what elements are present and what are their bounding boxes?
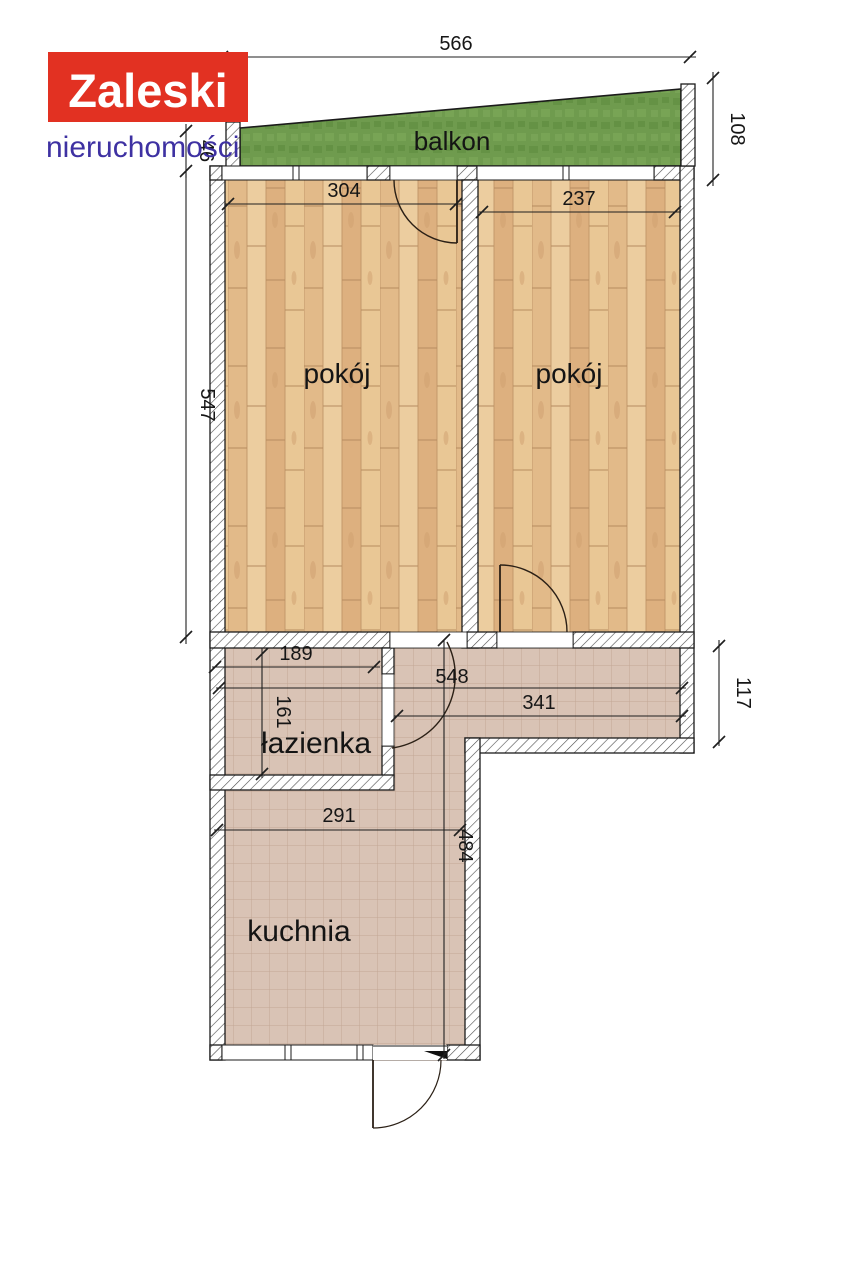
- wall-top-seg-1: [210, 166, 222, 180]
- room2-label: pokój: [536, 358, 603, 389]
- logo-subtitle: nieruchomości: [46, 131, 239, 164]
- window-jamb: [285, 1045, 291, 1060]
- wall-balcony-right: [681, 84, 695, 166]
- dimension-label-hall-depth: 117: [732, 677, 754, 709]
- dimension-label-balcony-depth-right: 108: [726, 112, 748, 145]
- wall-kitchen-bottom-seg-2: [447, 1045, 480, 1060]
- wall-bathroom-right-seg-1: [382, 648, 394, 674]
- window-jamb: [357, 1045, 363, 1060]
- wall-bathroom-right-seg-2: [382, 746, 394, 777]
- room1-floor: [225, 180, 462, 632]
- dimension-label-balcony-width: 566: [439, 33, 472, 55]
- wall-right-outer: [680, 166, 694, 753]
- wall-top-seg-3: [457, 166, 477, 180]
- dimension-label-room2-width: 237: [562, 188, 595, 210]
- wall-hall-top-seg-3: [573, 632, 694, 648]
- dimension-label-bathroom-width: 189: [279, 643, 312, 665]
- door-opening-room2: [497, 632, 573, 648]
- room2-floor: [478, 180, 680, 632]
- dimension-label-kitchen-width: 291: [322, 805, 355, 827]
- room1-label: pokój: [304, 358, 371, 389]
- wall-kitchen-bottom-seg-1: [210, 1045, 222, 1060]
- dimension-label-bathroom-depth: 161: [272, 695, 294, 728]
- wall-hall-top-seg-2: [467, 632, 497, 648]
- wall-left-outer: [210, 166, 225, 1060]
- bathroom-label: łazienka: [261, 727, 371, 760]
- dimension-label-room1-width: 304: [327, 180, 360, 202]
- window-jamb: [293, 166, 299, 180]
- dimension-hall-depth: [713, 640, 725, 748]
- floor-plan-page: 566 108 46 547 304 237 189 548 341 117 1…: [0, 0, 853, 1280]
- door-opening-balcony: [390, 166, 457, 180]
- floor-plan-svg: 566 108 46 547 304 237 189 548 341 117 1…: [0, 0, 853, 1280]
- wall-kitchen-right: [465, 738, 480, 1060]
- wall-rooms-divider: [462, 180, 478, 648]
- dimension-label-hall-width-total: 548: [435, 666, 468, 688]
- window-jamb: [563, 166, 569, 180]
- balcony-label: balkon: [414, 126, 491, 156]
- logo-title: Zaleski: [68, 64, 227, 117]
- dimension-label-rooms-depth: 547: [196, 388, 218, 421]
- door-opening-bathroom: [382, 674, 394, 746]
- dimension-label-kitchen-depth: 484: [454, 829, 476, 862]
- wall-corridor-bottom: [465, 738, 694, 753]
- entrance-door-arc: [373, 1060, 441, 1128]
- door-opening-room1: [390, 632, 467, 648]
- window-kitchen-bottom: [222, 1045, 373, 1060]
- dimension-rooms-depth: [180, 171, 192, 644]
- wall-top-seg-2: [367, 166, 390, 180]
- dimension-label-hall-width-right: 341: [522, 692, 555, 714]
- dimension-balcony-depth-right: [707, 72, 719, 186]
- wall-bathroom-bottom: [210, 775, 394, 790]
- logo: Zaleski nieruchomości: [46, 52, 248, 164]
- kitchen-label: kuchnia: [247, 915, 351, 948]
